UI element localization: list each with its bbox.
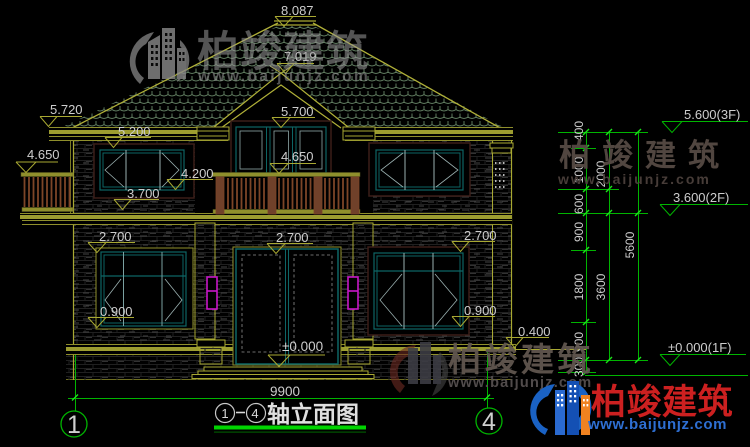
- svg-text:4: 4: [482, 408, 496, 436]
- svg-text:www.baijunjz.com: www.baijunjz.com: [557, 171, 711, 187]
- svg-text:±0.000: ±0.000: [282, 339, 323, 354]
- svg-text:5.600(3F): 5.600(3F): [684, 107, 740, 122]
- svg-text:0.900: 0.900: [100, 304, 133, 319]
- svg-text:8.087: 8.087: [281, 3, 314, 18]
- svg-text:3.600(2F): 3.600(2F): [673, 190, 729, 205]
- svg-text:600: 600: [572, 194, 586, 214]
- svg-text:2.700: 2.700: [464, 228, 497, 243]
- svg-text:1: 1: [67, 411, 81, 439]
- svg-text:www.baijunjz.com: www.baijunjz.com: [587, 416, 727, 433]
- svg-text:1800: 1800: [572, 273, 586, 300]
- svg-text:0.900: 0.900: [464, 303, 497, 318]
- svg-text:5.200: 5.200: [118, 124, 151, 139]
- svg-text:2.700: 2.700: [99, 229, 132, 244]
- svg-text:柏竣建筑: 柏竣建筑: [448, 341, 594, 378]
- svg-text:轴立面图: 轴立面图: [267, 401, 359, 427]
- svg-text:5.700: 5.700: [281, 104, 314, 119]
- svg-text:±0.000(1F): ±0.000(1F): [668, 340, 732, 355]
- svg-text:柏竣建筑: 柏竣建筑: [559, 138, 731, 173]
- svg-text:4: 4: [251, 406, 258, 421]
- svg-text:4.650: 4.650: [281, 149, 314, 164]
- svg-text:4.200: 4.200: [181, 166, 214, 181]
- svg-text:3.700: 3.700: [127, 186, 160, 201]
- svg-text:0.400: 0.400: [518, 324, 551, 339]
- svg-text:www.baijunjz.com: www.baijunjz.com: [197, 68, 370, 85]
- svg-text:3600: 3600: [594, 273, 608, 300]
- svg-text:4.650: 4.650: [27, 147, 60, 162]
- svg-text:5.720: 5.720: [50, 102, 83, 117]
- svg-text:1: 1: [221, 406, 228, 421]
- svg-text:5600: 5600: [623, 231, 637, 258]
- svg-text:2.700: 2.700: [276, 230, 309, 245]
- svg-text:900: 900: [572, 222, 586, 242]
- svg-text:9900: 9900: [270, 384, 300, 399]
